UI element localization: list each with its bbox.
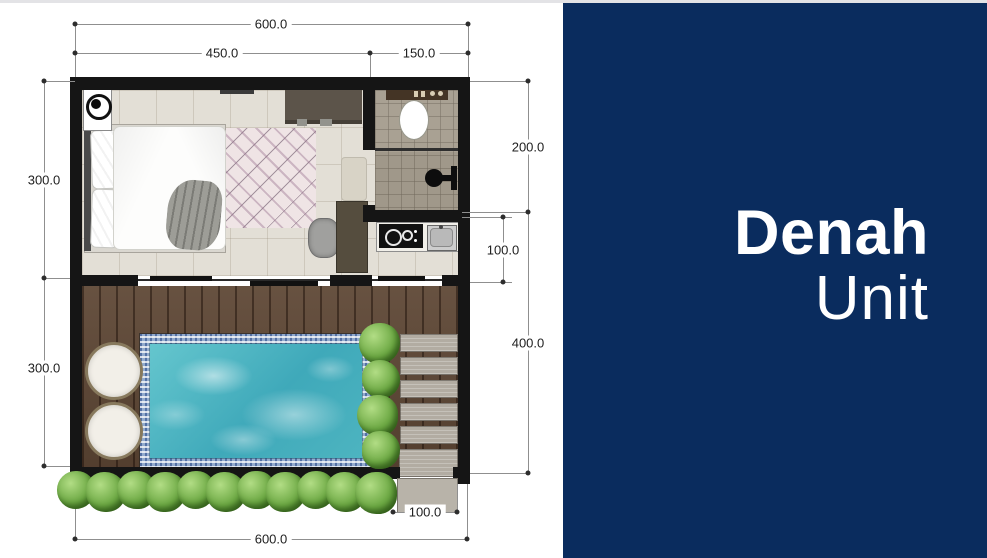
dim-dot bbox=[42, 464, 47, 469]
dim-top-right-span: 150.0 bbox=[399, 46, 440, 61]
dim-extension bbox=[44, 81, 75, 82]
dim-dot bbox=[501, 215, 506, 220]
wall-bath-kitchen bbox=[363, 210, 470, 222]
bush bbox=[355, 472, 397, 514]
dim-dot bbox=[526, 471, 531, 476]
cabinet-handle bbox=[297, 119, 307, 126]
dim-dot bbox=[465, 537, 470, 542]
dim-top-total: 600.0 bbox=[251, 17, 292, 32]
dim-bottom-total: 600.0 bbox=[251, 532, 292, 547]
pool-water bbox=[150, 344, 362, 458]
shower-floor-shade bbox=[375, 152, 458, 210]
dim-dot bbox=[42, 79, 47, 84]
floorplan: 600.0 450.0 150.0 300.0 300.0 200.0 100.… bbox=[0, 0, 563, 558]
dim-dot bbox=[391, 510, 396, 515]
vanity-knob-icon bbox=[438, 91, 443, 96]
title-panel: Denah Unit bbox=[563, 3, 987, 558]
dim-extension bbox=[470, 473, 528, 474]
dim-right-bathroom: 200.0 bbox=[508, 140, 549, 155]
cabinet-handle bbox=[320, 119, 332, 126]
dim-extension bbox=[467, 484, 468, 539]
step-slab bbox=[400, 357, 458, 375]
dim-dot bbox=[466, 51, 471, 56]
bush bbox=[362, 360, 400, 398]
dim-extension bbox=[370, 53, 371, 77]
wall-bedroom-bottom bbox=[330, 275, 372, 286]
door-mat bbox=[341, 157, 367, 201]
dim-right-pool: 400.0 bbox=[508, 336, 549, 351]
wall-bath-vertical bbox=[363, 77, 375, 150]
page-title: Denah Unit bbox=[734, 201, 929, 331]
stove-knob bbox=[414, 239, 417, 242]
burner-icon bbox=[385, 229, 402, 246]
dim-dot bbox=[368, 51, 373, 56]
sliding-door-leaf bbox=[378, 276, 425, 281]
dim-dot bbox=[466, 22, 471, 27]
shower-valve bbox=[451, 166, 457, 190]
bath-partition bbox=[375, 148, 458, 151]
wall-bedroom-bottom bbox=[70, 275, 138, 286]
sink-faucet bbox=[439, 225, 443, 229]
dim-dot bbox=[73, 51, 78, 56]
dim-extension bbox=[470, 81, 528, 82]
sliding-door-leaf bbox=[250, 281, 318, 286]
step-slab bbox=[399, 449, 458, 477]
round-table bbox=[85, 402, 143, 460]
dim-extension bbox=[470, 282, 512, 283]
dim-extension bbox=[462, 212, 528, 213]
bush bbox=[357, 395, 398, 436]
title-bold: Denah bbox=[734, 201, 929, 267]
burner-icon bbox=[402, 230, 413, 241]
dim-dot bbox=[526, 210, 531, 215]
wall-top bbox=[70, 77, 470, 90]
dim-dot bbox=[42, 276, 47, 281]
vanity-faucet-icon bbox=[421, 91, 425, 97]
ceiling-fan-hub bbox=[91, 99, 101, 109]
dim-extension bbox=[44, 278, 70, 279]
dim-top-left-span: 450.0 bbox=[202, 46, 243, 61]
dim-extension bbox=[457, 484, 458, 512]
dim-bottom-steps: 100.0 bbox=[405, 505, 446, 520]
step-slab bbox=[400, 426, 458, 444]
step-slab bbox=[400, 403, 458, 421]
dim-extension bbox=[44, 466, 70, 467]
stove-knob bbox=[414, 230, 417, 233]
dim-line bbox=[44, 81, 45, 466]
dim-dot bbox=[501, 280, 506, 285]
vanity-knob-icon bbox=[430, 91, 435, 96]
step-slab bbox=[400, 334, 458, 352]
bush bbox=[359, 323, 400, 364]
sink-basin bbox=[430, 228, 453, 247]
step-slab bbox=[400, 380, 458, 398]
toilet bbox=[399, 100, 429, 140]
dim-dot bbox=[73, 537, 78, 542]
dim-dot bbox=[455, 510, 460, 515]
slide: 600.0 450.0 150.0 300.0 300.0 200.0 100.… bbox=[0, 0, 987, 558]
title-light: Unit bbox=[734, 267, 929, 331]
bush bbox=[362, 431, 400, 469]
area-rug bbox=[226, 128, 316, 228]
dim-dot bbox=[526, 79, 531, 84]
sliding-door-leaf bbox=[150, 276, 212, 281]
wall-bedroom-bottom bbox=[442, 275, 470, 286]
vanity-faucet-icon bbox=[414, 91, 418, 97]
dim-left-upper: 300.0 bbox=[24, 173, 65, 188]
round-table bbox=[85, 342, 143, 400]
dim-left-lower: 300.0 bbox=[24, 361, 65, 376]
dim-dot bbox=[73, 22, 78, 27]
dim-right-kitchen: 100.0 bbox=[483, 243, 524, 258]
